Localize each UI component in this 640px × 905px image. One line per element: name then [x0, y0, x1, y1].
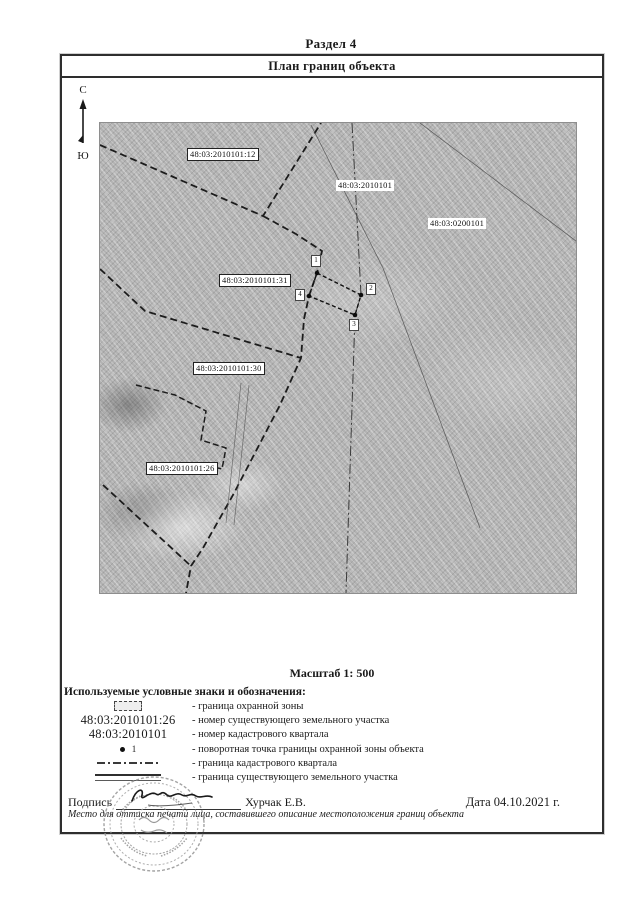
- quarter-label: 48:03:0200101: [428, 218, 486, 229]
- parcel-label: 48:03:2010101:31: [219, 274, 291, 287]
- legend: Используемые условные знаки и обозначени…: [64, 685, 594, 785]
- compass: С Ю: [70, 84, 96, 162]
- legend-row: 48:03:2010101 - номер кадастрового кварт…: [64, 728, 594, 742]
- legend-row: - граница охранной зоны: [64, 699, 594, 713]
- quarter-boundary-symbol: [97, 762, 159, 764]
- panel-title: План границ объекта: [62, 56, 602, 78]
- boundary-plan-map: 48:03:2010101:12 48:03:2010101 48:03:020…: [99, 122, 577, 594]
- turning-point-tag: 1: [311, 255, 321, 267]
- turning-point-symbol-number: 1: [132, 744, 137, 754]
- legend-label: - номер кадастрового квартала: [192, 729, 329, 740]
- legend-label: - граница существующего земельного участ…: [192, 772, 398, 783]
- document-page: Раздел 4 План границ объекта С Ю: [0, 0, 640, 905]
- legend-heading: Используемые условные знаки и обозначени…: [64, 685, 594, 699]
- compass-north-label: С: [70, 84, 96, 96]
- parcel-label: 48:03:2010101:30: [193, 362, 265, 375]
- plan-panel: План границ объекта С Ю: [60, 54, 604, 834]
- map-boundary-lines: [100, 123, 576, 593]
- section-title: Раздел 4: [60, 36, 602, 52]
- legend-label: - номер существующего земельного участка: [192, 715, 389, 726]
- quarter-label: 48:03:2010101: [336, 180, 394, 191]
- handwritten-signature: [130, 785, 214, 811]
- legend-row: 1 - поворотная точка границы охранной зо…: [64, 742, 594, 756]
- legend-row: 48:03:2010101:26 - номер существующего з…: [64, 713, 594, 727]
- legend-row: - граница кадастрового квартала: [64, 756, 594, 770]
- north-arrow-icon: [73, 97, 93, 149]
- compass-south-label: Ю: [70, 150, 96, 162]
- zone-boundary-symbol: [114, 701, 142, 711]
- turning-point-symbol: [120, 747, 125, 752]
- legend-label: - поворотная точка границы охранной зоны…: [192, 744, 424, 755]
- turning-point-tag: 2: [366, 283, 376, 295]
- legend-label: - граница кадастрового квартала: [192, 758, 337, 769]
- quarter-number-symbol: 48:03:2010101: [89, 727, 167, 742]
- parcel-label: 48:03:2010101:26: [146, 462, 218, 475]
- signature-date: Дата 04.10.2021 г.: [466, 795, 560, 810]
- parcel-number-symbol: 48:03:2010101:26: [81, 713, 176, 728]
- turning-point-tag: 4: [295, 289, 305, 301]
- legend-label: - граница охранной зоны: [192, 701, 303, 712]
- parcel-label: 48:03:2010101:12: [187, 148, 259, 161]
- scale-text: Масштаб 1: 500: [62, 666, 602, 681]
- turning-point-tag: 3: [349, 319, 359, 331]
- signer-name: Хурчак Е.В.: [245, 795, 306, 810]
